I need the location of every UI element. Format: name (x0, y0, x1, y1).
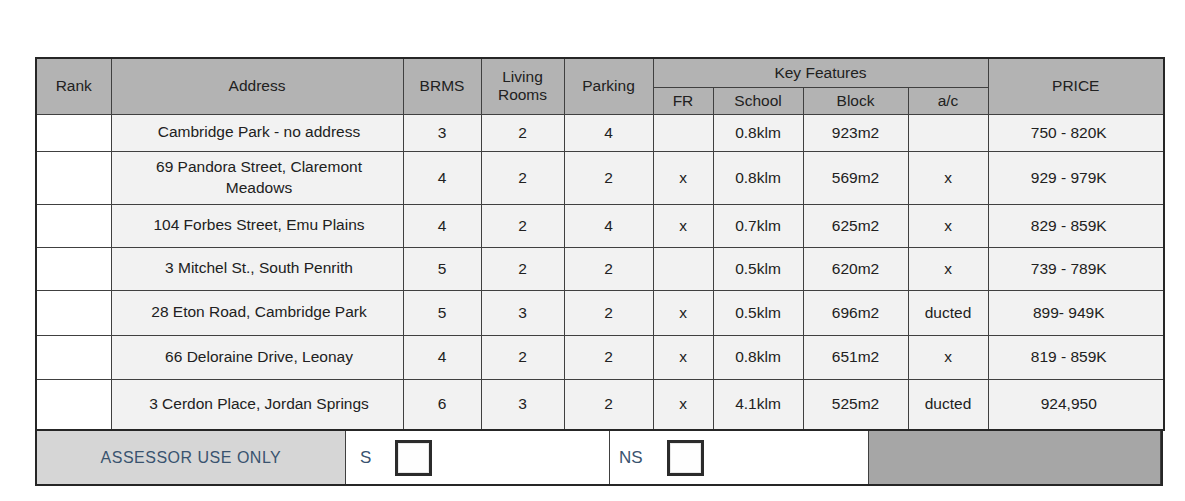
header-parking: Parking (564, 58, 653, 114)
brms-cell: 4 (403, 151, 481, 204)
ns-cell: NS (610, 431, 869, 484)
fr-cell: x (653, 379, 713, 430)
price-cell: 739 - 789K (988, 247, 1164, 290)
rank-cell (36, 247, 111, 290)
rank-cell (36, 114, 111, 151)
school-cell: 0.7klm (713, 204, 803, 247)
fr-cell (653, 114, 713, 151)
table-row: 3 Mitchel St., South Penrith 5 2 2 0.5kl… (36, 247, 1164, 290)
address-cell: 28 Eton Road, Cambridge Park (111, 290, 403, 335)
school-cell: 0.5klm (713, 290, 803, 335)
ac-cell: x (908, 335, 988, 379)
parking-cell: 4 (564, 114, 653, 151)
brms-cell: 5 (403, 247, 481, 290)
table-row: 66 Deloraine Drive, Leonay 4 2 2 x 0.8kl… (36, 335, 1164, 379)
brms-cell: 4 (403, 204, 481, 247)
header-rank: Rank (36, 58, 111, 114)
school-cell: 0.8klm (713, 114, 803, 151)
property-comparison-sheet: Rank Address BRMS Living Rooms Parking K… (35, 57, 1163, 486)
s-cell: S (346, 431, 610, 484)
brms-cell: 4 (403, 335, 481, 379)
fr-cell: x (653, 204, 713, 247)
address-cell: 66 Deloraine Drive, Leonay (111, 335, 403, 379)
table-row: 104 Forbes Street, Emu Plains 4 2 4 x 0.… (36, 204, 1164, 247)
address-cell: 104 Forbes Street, Emu Plains (111, 204, 403, 247)
brms-cell: 3 (403, 114, 481, 151)
parking-cell: 4 (564, 204, 653, 247)
header-brms: BRMS (403, 58, 481, 114)
s-checkbox[interactable] (395, 440, 432, 476)
fr-cell (653, 247, 713, 290)
header-school: School (713, 87, 803, 114)
school-cell: 0.8klm (713, 335, 803, 379)
fr-cell: x (653, 290, 713, 335)
rank-cell (36, 204, 111, 247)
ac-cell: x (908, 204, 988, 247)
header-living-rooms: Living Rooms (481, 58, 564, 114)
living-rooms-cell: 3 (481, 290, 564, 335)
block-cell: 525m2 (803, 379, 908, 430)
ns-checkbox[interactable] (667, 440, 704, 476)
living-rooms-cell: 2 (481, 335, 564, 379)
rank-cell (36, 379, 111, 430)
assessor-footer: ASSESSOR USE ONLY S NS (35, 431, 1163, 486)
parking-cell: 2 (564, 335, 653, 379)
fr-cell: x (653, 335, 713, 379)
school-cell: 0.8klm (713, 151, 803, 204)
footer-blank-cell (869, 431, 1161, 484)
block-cell: 569m2 (803, 151, 908, 204)
living-rooms-cell: 2 (481, 204, 564, 247)
parking-cell: 2 (564, 290, 653, 335)
price-cell: 899- 949K (988, 290, 1164, 335)
price-cell: 924,950 (988, 379, 1164, 430)
ac-cell (908, 114, 988, 151)
table-row: Cambridge Park - no address 3 2 4 0.8klm… (36, 114, 1164, 151)
living-rooms-cell: 2 (481, 151, 564, 204)
block-cell: 696m2 (803, 290, 908, 335)
property-comparison-table: Rank Address BRMS Living Rooms Parking K… (35, 57, 1165, 431)
rank-cell (36, 151, 111, 204)
block-cell: 625m2 (803, 204, 908, 247)
living-rooms-cell: 3 (481, 379, 564, 430)
address-cell: 3 Mitchel St., South Penrith (111, 247, 403, 290)
school-cell: 4.1klm (713, 379, 803, 430)
s-label: S (360, 448, 371, 468)
header-key-features: Key Features (653, 58, 988, 87)
price-cell: 750 - 820K (988, 114, 1164, 151)
rank-cell (36, 290, 111, 335)
address-cell: 69 Pandora Street, Claremont Meadows (111, 151, 403, 204)
address-cell: 3 Cerdon Place, Jordan Springs (111, 379, 403, 430)
rank-cell (36, 335, 111, 379)
header-block: Block (803, 87, 908, 114)
ac-cell: ducted (908, 379, 988, 430)
price-cell: 829 - 859K (988, 204, 1164, 247)
header-fr: FR (653, 87, 713, 114)
table-row: 28 Eton Road, Cambridge Park 5 3 2 x 0.5… (36, 290, 1164, 335)
address-cell: Cambridge Park - no address (111, 114, 403, 151)
block-cell: 923m2 (803, 114, 908, 151)
living-rooms-cell: 2 (481, 247, 564, 290)
block-cell: 620m2 (803, 247, 908, 290)
price-cell: 819 - 859K (988, 335, 1164, 379)
brms-cell: 5 (403, 290, 481, 335)
ac-cell: ducted (908, 290, 988, 335)
parking-cell: 2 (564, 379, 653, 430)
ac-cell: x (908, 151, 988, 204)
living-rooms-cell: 2 (481, 114, 564, 151)
header-address: Address (111, 58, 403, 114)
price-cell: 929 - 979K (988, 151, 1164, 204)
fr-cell: x (653, 151, 713, 204)
header-ac: a/c (908, 87, 988, 114)
table-row: 69 Pandora Street, Claremont Meadows 4 2… (36, 151, 1164, 204)
ns-label: NS (619, 448, 643, 468)
ac-cell: x (908, 247, 988, 290)
parking-cell: 2 (564, 247, 653, 290)
brms-cell: 6 (403, 379, 481, 430)
block-cell: 651m2 (803, 335, 908, 379)
parking-cell: 2 (564, 151, 653, 204)
header-price: PRICE (988, 58, 1164, 114)
table-row: 3 Cerdon Place, Jordan Springs 6 3 2 x 4… (36, 379, 1164, 430)
assessor-use-only-label: ASSESSOR USE ONLY (37, 431, 346, 484)
school-cell: 0.5klm (713, 247, 803, 290)
